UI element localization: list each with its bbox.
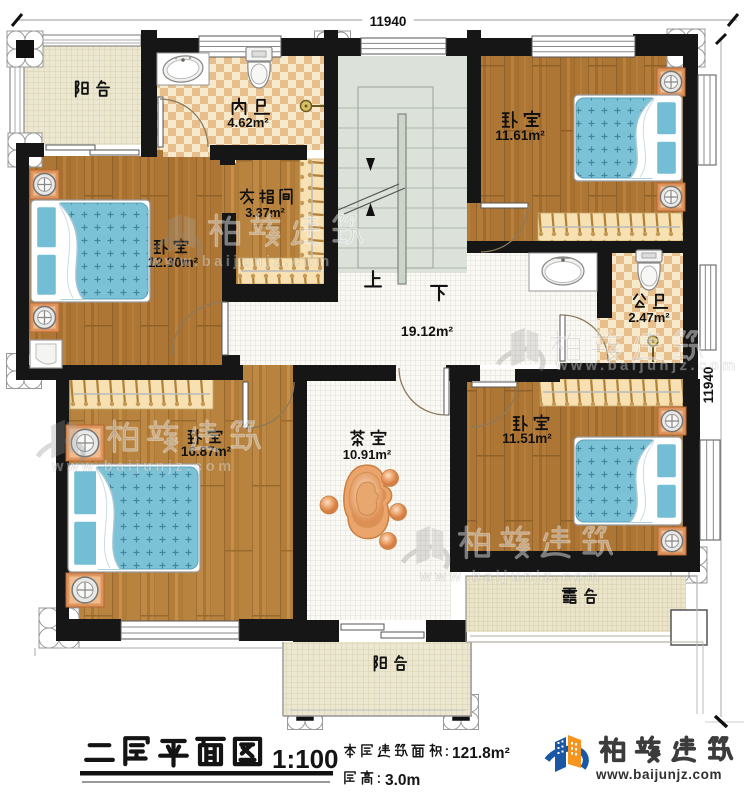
- svg-text:3.0m: 3.0m: [385, 772, 420, 789]
- svg-text:1:100: 1:100: [272, 744, 339, 774]
- svg-text:4.62m²: 4.62m²: [227, 115, 269, 130]
- svg-text:2.47m²: 2.47m²: [628, 310, 670, 325]
- svg-text:19.12m²: 19.12m²: [401, 323, 453, 339]
- svg-text:121.8m²: 121.8m²: [452, 745, 510, 762]
- svg-text:www.baijunjz.com: www.baijunjz.com: [595, 767, 722, 782]
- svg-text:www.baijunjz.com: www.baijunjz.com: [555, 358, 739, 374]
- svg-text:www.baijunjz.com: www.baijunjz.com: [149, 254, 333, 270]
- svg-text:10.91m²: 10.91m²: [343, 447, 392, 462]
- svg-text:11.61m²: 11.61m²: [495, 128, 545, 143]
- svg-text:3.37m²: 3.37m²: [245, 206, 285, 220]
- svg-text:www.baijunjz.com: www.baijunjz.com: [419, 569, 603, 585]
- svg-text:11.51m²: 11.51m²: [502, 431, 552, 446]
- svg-text:11940: 11940: [370, 14, 407, 29]
- svg-text:www.baijunjz.com: www.baijunjz.com: [51, 459, 235, 475]
